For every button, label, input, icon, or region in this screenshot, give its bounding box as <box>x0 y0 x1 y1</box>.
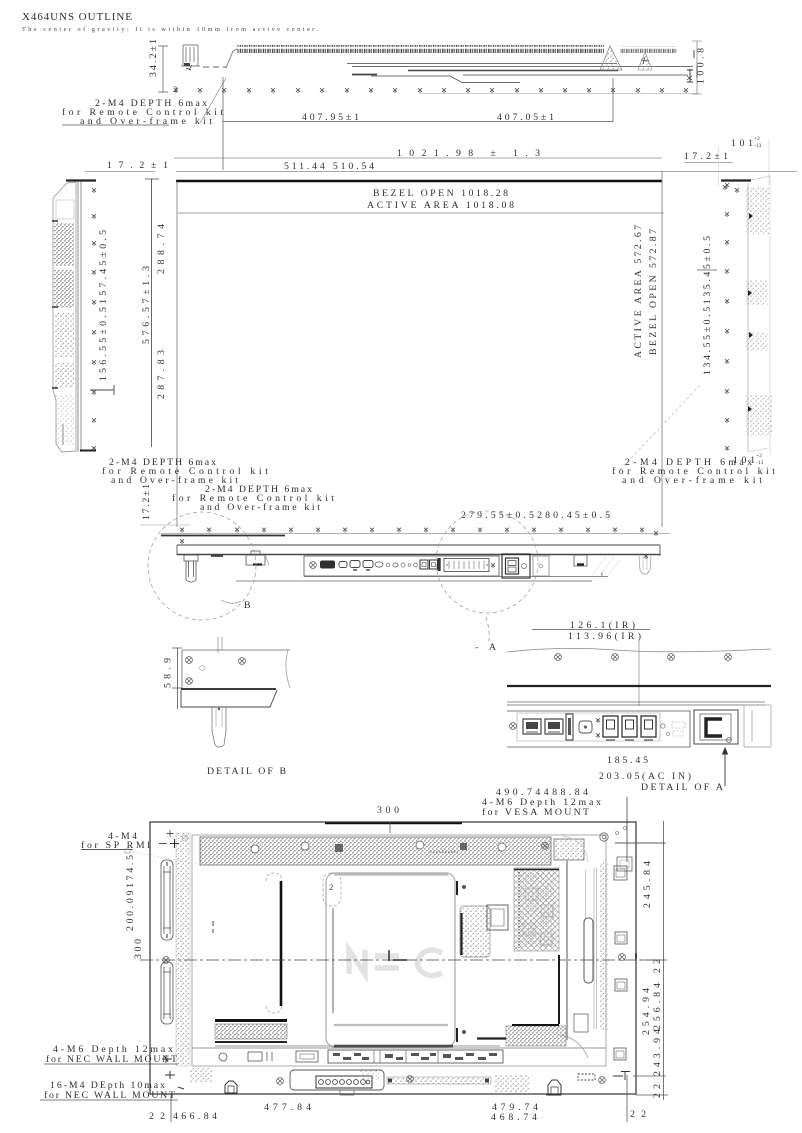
svg-text:-13: -13 <box>754 143 762 149</box>
svg-text:+2: +2 <box>756 453 762 459</box>
svg-text:2: 2 <box>329 882 333 892</box>
svg-text:101: 101 <box>733 455 755 466</box>
svg-text:BEZEL OPEN 1018.28: BEZEL OPEN 1018.28 <box>373 188 508 199</box>
svg-text:DETAIL OF A: DETAIL OF A <box>641 782 723 793</box>
svg-text:101: 101 <box>731 138 753 149</box>
svg-text:A: A <box>489 642 496 653</box>
svg-text:-13: -13 <box>756 460 764 466</box>
svg-text:DETAIL OF B: DETAIL OF B <box>207 766 286 777</box>
svg-text:B: B <box>244 600 251 611</box>
svg-text:ACTIVE AREA 572.67: ACTIVE AREA 572.67 <box>633 225 644 358</box>
svg-text:+2: +2 <box>754 136 760 142</box>
svg-text:-: - <box>475 642 478 653</box>
svg-text:300: 300 <box>377 805 399 816</box>
svg-text:300: 300 <box>133 939 144 959</box>
svg-text:X464UNS OUTLINE: X464UNS OUTLINE <box>22 11 132 23</box>
